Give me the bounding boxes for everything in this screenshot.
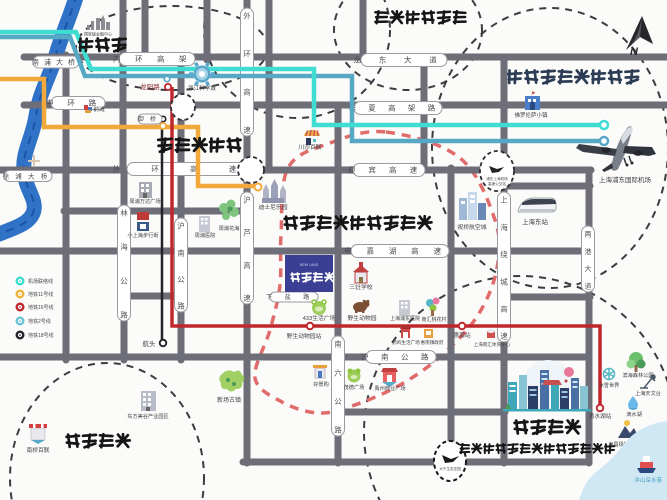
svg-text:御桥: 御桥 bbox=[138, 115, 162, 123]
svg-text:高: 高 bbox=[243, 87, 251, 97]
svg-text:鹤鸣生活广场: 鹤鸣生活广场 bbox=[392, 339, 420, 346]
svg-text:速: 速 bbox=[500, 332, 508, 341]
svg-text:前滩: 前滩 bbox=[93, 105, 105, 113]
svg-text:徐浦大桥: 徐浦大桥 bbox=[3, 171, 54, 180]
svg-text:申嘉湖高速: 申嘉湖高速 bbox=[344, 246, 456, 256]
svg-text:机场联络线: 机场联络线 bbox=[28, 278, 53, 285]
svg-text:南汇桃花村: 南汇桃花村 bbox=[421, 316, 446, 323]
svg-text:佛罗伦萨小镇: 佛罗伦萨小镇 bbox=[514, 111, 548, 119]
svg-text:大千生态庄园: 大千生态庄园 bbox=[439, 466, 461, 471]
svg-text:南: 南 bbox=[334, 339, 342, 349]
svg-text:南浦大桥: 南浦大桥 bbox=[32, 58, 80, 67]
svg-text:路: 路 bbox=[334, 425, 342, 435]
svg-text:两: 两 bbox=[585, 231, 592, 239]
svg-text:地铁16号线: 地铁16号线 bbox=[28, 304, 54, 311]
svg-text:上海浦东国际机场: 上海浦东国际机场 bbox=[599, 175, 652, 184]
svg-text:地铁11号线: 地铁11号线 bbox=[28, 291, 53, 298]
svg-text:港: 港 bbox=[585, 247, 592, 256]
svg-text:小上海步行街: 小上海步行街 bbox=[127, 231, 158, 239]
svg-text:速: 速 bbox=[243, 126, 251, 135]
svg-text:沪南公路: 沪南公路 bbox=[361, 352, 441, 362]
svg-text:龙阳路: 龙阳路 bbox=[140, 82, 160, 91]
svg-text:城: 城 bbox=[500, 277, 508, 286]
svg-text:新场古镇: 新场古镇 bbox=[217, 396, 241, 404]
svg-text:六: 六 bbox=[334, 367, 342, 377]
svg-text:南: 南 bbox=[177, 247, 185, 257]
svg-text:地铁2号线: 地铁2号线 bbox=[28, 318, 51, 325]
svg-text:茂德广场: 茂德广场 bbox=[344, 383, 365, 391]
svg-text:芦: 芦 bbox=[243, 227, 251, 237]
svg-text:上海东站: 上海东站 bbox=[522, 217, 549, 226]
svg-text:外: 外 bbox=[243, 11, 251, 21]
svg-text:滨海森林公园: 滨海森林公园 bbox=[622, 371, 653, 379]
svg-text:绕: 绕 bbox=[500, 249, 508, 259]
svg-text:N: N bbox=[630, 46, 639, 58]
svg-text:野生动物园: 野生动物园 bbox=[348, 314, 377, 322]
svg-text:惠南站: 惠南站 bbox=[453, 331, 471, 339]
svg-text:林: 林 bbox=[120, 208, 128, 218]
svg-text:沪: 沪 bbox=[177, 221, 185, 231]
svg-text:上海天文台: 上海天文台 bbox=[635, 389, 661, 397]
svg-text:NEW LAND: NEW LAND bbox=[300, 263, 319, 267]
svg-text:迪士尼乐园: 迪士尼乐园 bbox=[259, 203, 288, 211]
svg-text:地铁18号线: 地铁18号线 bbox=[28, 332, 54, 339]
svg-text:惠南镇政府: 惠南镇政府 bbox=[421, 339, 444, 346]
svg-text:公: 公 bbox=[334, 397, 342, 406]
svg-text:路: 路 bbox=[177, 301, 185, 311]
svg-text:海: 海 bbox=[500, 222, 508, 232]
svg-text:高速公交站: 高速公交站 bbox=[488, 181, 506, 186]
svg-text:龙东大道: 龙东大道 bbox=[353, 55, 454, 65]
svg-text:433生活广场: 433生活广场 bbox=[303, 314, 336, 322]
svg-text:浦东上海机场: 浦东上海机场 bbox=[486, 176, 508, 181]
svg-text:迎宾高速: 迎宾高速 bbox=[348, 165, 430, 175]
svg-text:张江科学城: 张江科学城 bbox=[188, 84, 216, 92]
svg-text:东方美谷产业园区: 东方美谷产业园区 bbox=[127, 412, 169, 420]
svg-text:周浦医院: 周浦医院 bbox=[195, 231, 217, 239]
svg-text:周浦万达广场: 周浦万达广场 bbox=[129, 197, 160, 205]
svg-text:高: 高 bbox=[500, 304, 508, 314]
svg-text:速: 速 bbox=[243, 294, 251, 303]
svg-text:环: 环 bbox=[243, 50, 251, 59]
svg-text:上海南汇体育中心: 上海南汇体育中心 bbox=[474, 341, 511, 348]
svg-text:大: 大 bbox=[585, 264, 592, 273]
svg-text:道: 道 bbox=[585, 282, 592, 291]
svg-text:野生动物园站: 野生动物园站 bbox=[287, 332, 322, 340]
svg-text:南桥百联: 南桥百联 bbox=[26, 446, 49, 454]
svg-text:上海浦东医院: 上海浦东医院 bbox=[390, 315, 420, 322]
svg-text:冰雪世界: 冰雪世界 bbox=[599, 381, 620, 389]
svg-text:高: 高 bbox=[243, 260, 251, 270]
svg-text:滴水湖站: 滴水湖站 bbox=[588, 412, 611, 420]
svg-text:路: 路 bbox=[120, 310, 128, 320]
svg-text:上: 上 bbox=[500, 196, 508, 205]
svg-text:沪: 沪 bbox=[243, 195, 251, 205]
svg-text:华夏高架路: 华夏高架路 bbox=[349, 103, 448, 113]
svg-text:祝桥航空城: 祝桥航空城 bbox=[458, 223, 487, 231]
svg-text:洋山深水港: 洋山深水港 bbox=[634, 476, 662, 484]
svg-text:三灶学校: 三灶学校 bbox=[349, 283, 372, 291]
svg-text:滴水湖: 滴水湖 bbox=[626, 410, 642, 418]
svg-text:周浦花海: 周浦花海 bbox=[219, 224, 240, 232]
svg-text:公: 公 bbox=[177, 275, 185, 284]
svg-text:公: 公 bbox=[120, 277, 128, 286]
svg-text:好景购: 好景购 bbox=[313, 380, 329, 388]
svg-text:航头: 航头 bbox=[143, 339, 157, 348]
svg-text:禹州商业广场: 禹州商业广场 bbox=[374, 384, 405, 392]
svg-text:内环高架: 内环高架 bbox=[113, 54, 201, 64]
svg-text:国家级金融中心: 国家级金融中心 bbox=[84, 31, 112, 37]
svg-text:海: 海 bbox=[120, 242, 128, 252]
svg-text:川沙百联: 川沙百联 bbox=[298, 143, 321, 151]
